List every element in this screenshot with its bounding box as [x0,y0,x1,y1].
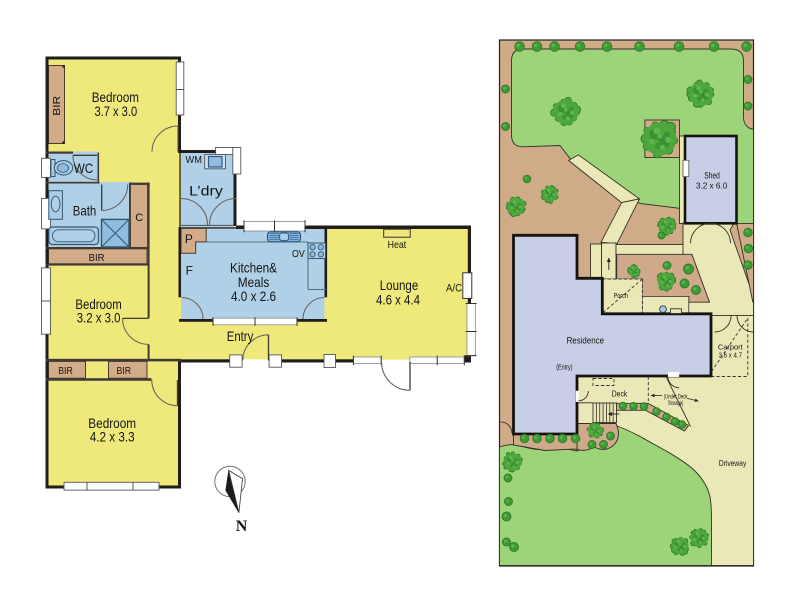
svg-text:3.2 x 6.0: 3.2 x 6.0 [696,181,728,191]
svg-text:BIR: BIR [89,252,105,264]
svg-text:F: F [186,264,193,278]
svg-text:Shed: Shed [704,171,720,181]
svg-text:P: P [185,232,193,246]
svg-text:L’dry: L’dry [189,183,223,199]
svg-text:OV: OV [292,248,305,260]
svg-text:Residence: Residence [567,335,604,346]
svg-text:Entry: Entry [227,328,254,344]
svg-text:Bath: Bath [73,202,97,218]
svg-text:3,6 x 4.7: 3,6 x 4.7 [719,351,743,360]
svg-text:BIR: BIR [51,95,63,115]
svg-text:WC: WC [74,160,94,176]
svg-text:BIR: BIR [117,365,132,377]
svg-text:A/C: A/C [446,283,462,295]
svg-text:4.2 x 3.3: 4.2 x 3.3 [90,429,135,445]
svg-text:(Entry): (Entry) [556,365,572,372]
svg-text:BIR: BIR [58,365,73,377]
svg-text:Porch: Porch [614,291,628,300]
svg-text:N: N [236,518,248,535]
svg-text:WM: WM [186,155,202,166]
svg-text:3.2 x 3.0: 3.2 x 3.0 [77,310,121,326]
svg-text:4.6 x 4.4: 4.6 x 4.4 [376,292,420,308]
svg-text:Storage): Storage) [668,400,684,407]
svg-text:4.0 x 2.6: 4.0 x 2.6 [231,288,276,304]
svg-text:Driveway: Driveway [719,459,746,468]
svg-text:Heat: Heat [388,239,407,251]
svg-text:3.7 x 3.0: 3.7 x 3.0 [94,103,137,119]
svg-text:Deck: Deck [612,389,628,399]
svg-text:C: C [135,212,143,224]
